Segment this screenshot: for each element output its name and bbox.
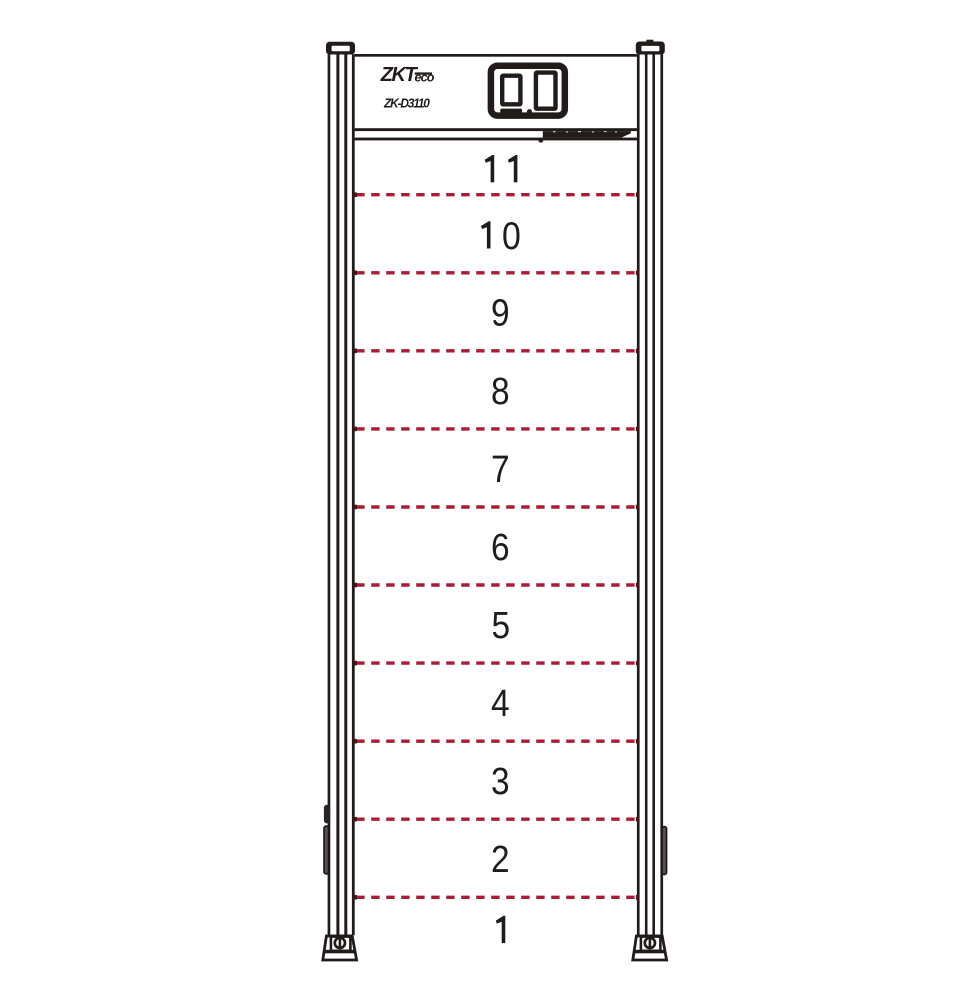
svg-text:8: 8 <box>491 370 510 412</box>
svg-text:ZKT: ZKT <box>380 64 419 86</box>
svg-text:4: 4 <box>491 682 510 724</box>
svg-text:9: 9 <box>491 292 510 334</box>
svg-text:0: 0 <box>502 214 521 258</box>
svg-text:eco: eco <box>415 70 435 84</box>
svg-text:6: 6 <box>491 526 510 568</box>
svg-text:5: 5 <box>492 604 511 646</box>
svg-text:2: 2 <box>491 838 510 880</box>
svg-text:3: 3 <box>491 760 510 802</box>
svg-text:ZK-D3110: ZK-D3110 <box>383 96 430 110</box>
svg-text:7: 7 <box>491 448 510 490</box>
